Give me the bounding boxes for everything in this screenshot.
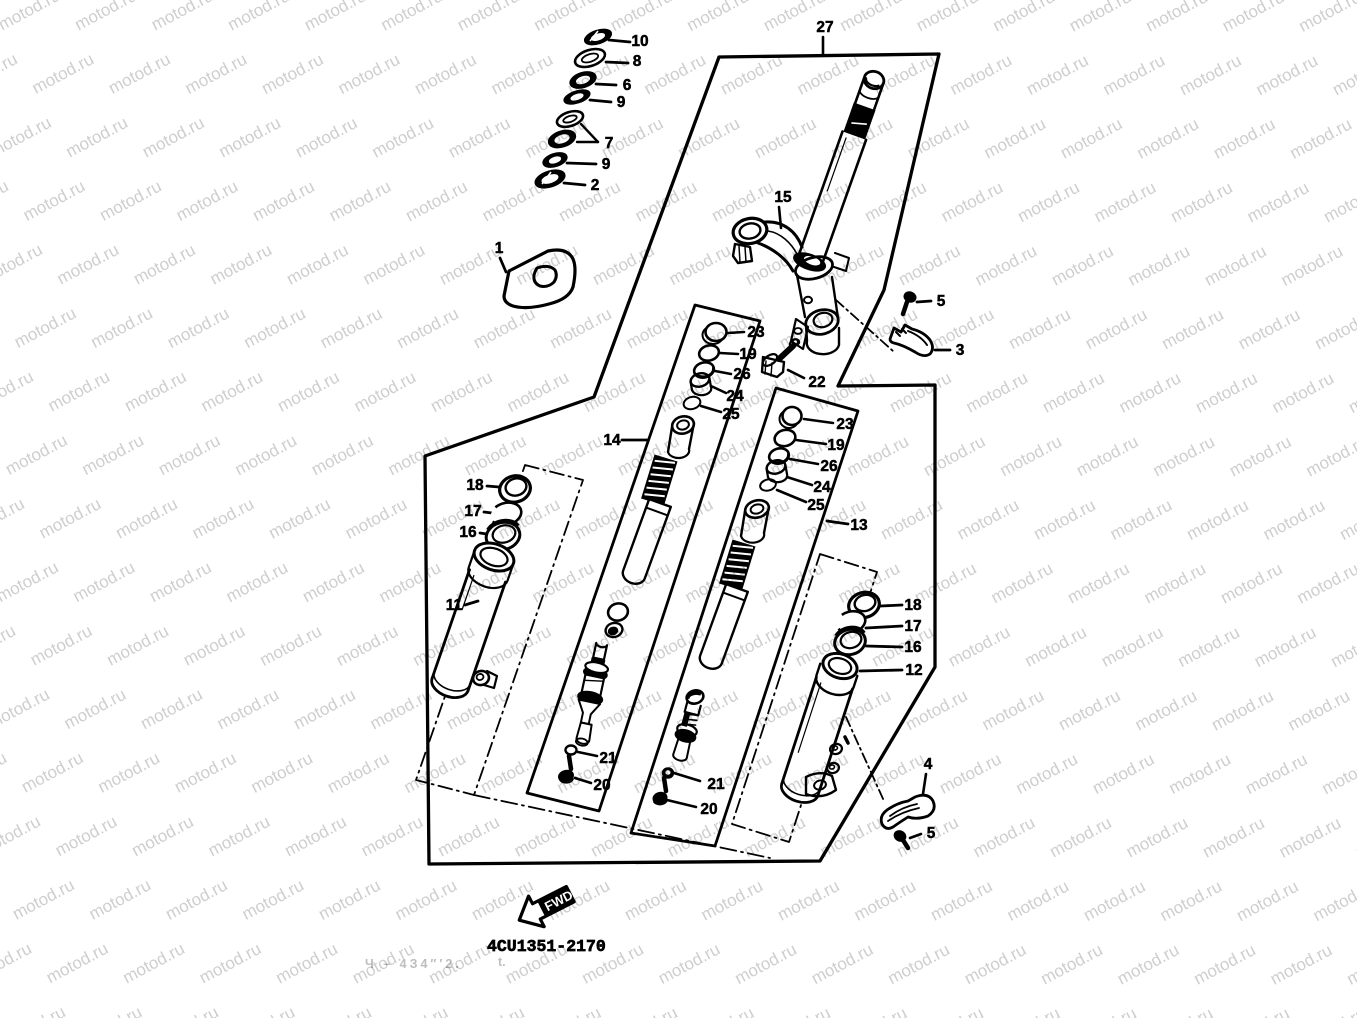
- svg-text:26: 26: [733, 366, 751, 383]
- svg-text:10: 10: [631, 33, 648, 50]
- svg-text:26: 26: [820, 458, 838, 475]
- svg-text:25: 25: [807, 497, 825, 514]
- svg-text:8: 8: [633, 53, 642, 70]
- svg-text:5: 5: [937, 293, 946, 310]
- svg-text:15: 15: [774, 189, 792, 206]
- svg-text:22: 22: [808, 374, 825, 391]
- svg-text:24: 24: [813, 479, 831, 496]
- svg-text:20: 20: [700, 801, 717, 818]
- svg-text:9: 9: [617, 94, 626, 111]
- svg-text:14: 14: [603, 432, 621, 449]
- svg-text:18: 18: [466, 477, 484, 494]
- svg-text:3: 3: [956, 342, 965, 359]
- svg-text:6: 6: [623, 77, 632, 94]
- svg-text:12: 12: [905, 662, 922, 679]
- svg-text:19: 19: [739, 346, 757, 363]
- svg-text:16: 16: [459, 524, 477, 541]
- svg-text:20: 20: [593, 777, 610, 794]
- svg-text:t.: t.: [498, 955, 506, 969]
- svg-text:23: 23: [836, 416, 854, 433]
- svg-text:27: 27: [816, 19, 833, 36]
